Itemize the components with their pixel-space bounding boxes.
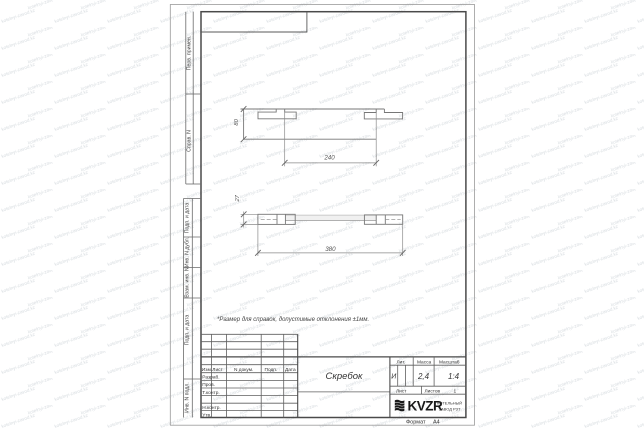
svg-text:А4: А4 [433,420,440,426]
svg-text:Пров.: Пров. [202,382,215,388]
svg-text:380: 380 [325,246,336,253]
svg-text:Скребок: Скребок [325,371,363,382]
svg-text:Лист: Лист [212,367,223,373]
svg-text:Подп. и дата: Подп. и дата [184,203,190,234]
svg-text:N докум.: N докум. [234,367,253,373]
svg-text:Масштаб: Масштаб [439,359,460,365]
svg-text:Разраб.: Разраб. [202,375,219,381]
svg-text:1: 1 [454,389,457,395]
svg-text:Лит.: Лит. [397,359,406,365]
svg-text:Формат: Формат [406,420,426,426]
svg-text:240: 240 [323,155,335,162]
svg-text:1:4: 1:4 [448,372,460,381]
svg-text:Н.контр.: Н.контр. [202,405,220,411]
svg-text:Утв.: Утв. [202,412,211,418]
svg-text:80: 80 [234,118,240,125]
svg-text:Листов: Листов [425,389,441,395]
svg-text:2,4: 2,4 [417,372,430,381]
svg-text:КОТЕЛЬНЫЙ: КОТЕЛЬНЫЙ [437,400,462,405]
svg-text:Инв. N дубл.: Инв. N дубл. [184,237,190,267]
svg-text:Взам. инв. N: Взам. инв. N [184,267,190,298]
svg-text:27: 27 [235,194,241,202]
svg-text:Лист: Лист [396,389,407,395]
svg-text:Инв. N подл.: Инв. N подл. [184,382,190,413]
svg-text:*Размер для справок, допустимы: *Размер для справок, допустимые отклонен… [217,317,369,323]
svg-text:Т.контр.: Т.контр. [202,390,219,396]
svg-text:Справ. N: Справ. N [187,130,193,152]
svg-text:Подп.: Подп. [265,367,278,373]
svg-text:Масса: Масса [417,359,432,365]
svg-text:ЗАВОД РЗТ: ЗАВОД РЗТ [439,406,461,411]
svg-text:Изм.: Изм. [202,367,212,373]
svg-text:Перв. примен.: Перв. примен. [187,36,193,71]
svg-text:Дата: Дата [285,367,296,373]
svg-text:Подп. и дата: Подп. и дата [184,315,190,346]
